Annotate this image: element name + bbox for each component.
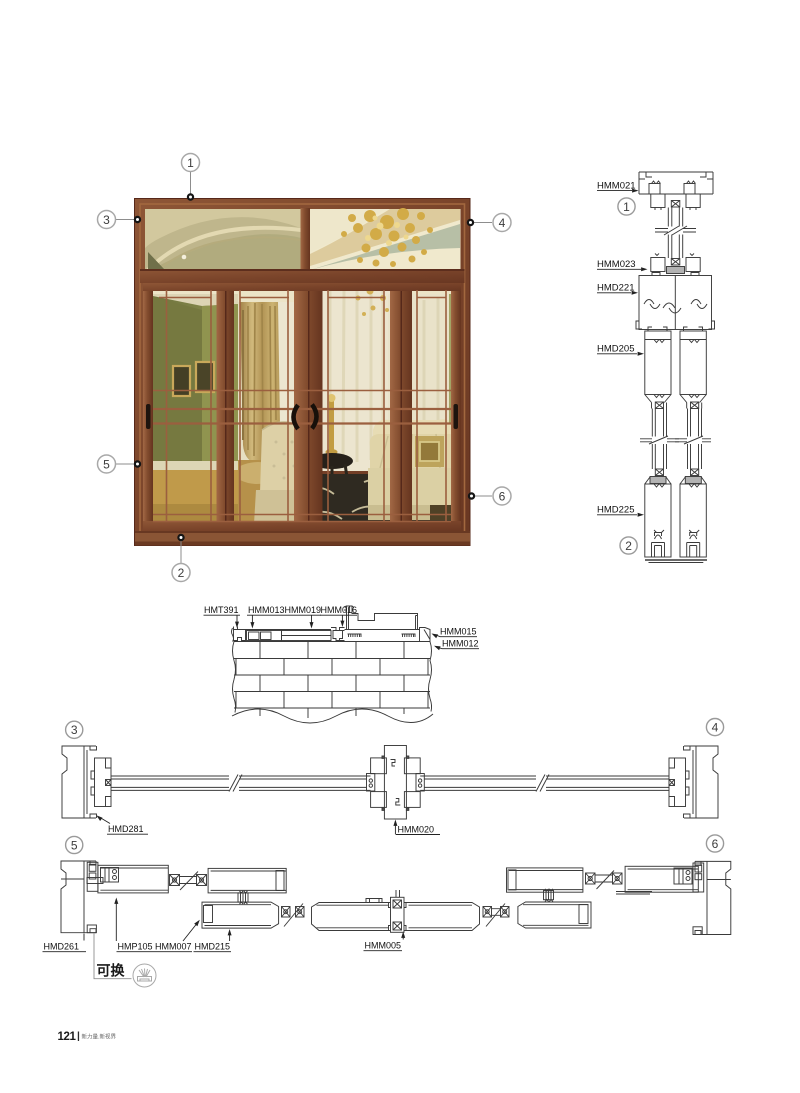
svg-text:HMM005: HMM005 [365, 941, 402, 951]
svg-text:1: 1 [187, 156, 194, 170]
svg-text:HMM013: HMM013 [248, 605, 285, 615]
svg-text:HMD221: HMD221 [597, 283, 635, 294]
svg-text:5: 5 [103, 458, 110, 472]
svg-text:3: 3 [71, 723, 78, 737]
svg-text:HMD215: HMD215 [195, 942, 231, 952]
svg-text:HMD225: HMD225 [597, 505, 635, 516]
svg-text:HMM023: HMM023 [597, 259, 636, 270]
svg-text:HMM016: HMM016 [321, 605, 358, 615]
svg-text:HMM021: HMM021 [597, 181, 636, 192]
svg-text:新力量.新视界: 新力量.新视界 [82, 1033, 117, 1041]
svg-text:4: 4 [499, 216, 506, 230]
svg-text:121: 121 [58, 1031, 77, 1043]
svg-text:HMM020: HMM020 [398, 825, 435, 835]
svg-text:HMD281: HMD281 [108, 824, 144, 834]
svg-text:2: 2 [625, 539, 632, 553]
svg-text:1: 1 [623, 200, 630, 214]
svg-text:HMP105: HMP105 [118, 942, 153, 952]
svg-text:5: 5 [71, 838, 78, 852]
svg-text:4: 4 [712, 721, 719, 735]
svg-text:HMD261: HMD261 [44, 942, 80, 952]
svg-text:HMT391: HMT391 [204, 605, 239, 615]
svg-text:2: 2 [178, 566, 185, 580]
svg-text:6: 6 [499, 490, 506, 504]
svg-text:可换: 可换 [97, 963, 126, 979]
svg-text:HMM012: HMM012 [442, 639, 479, 649]
svg-text:HMD205: HMD205 [597, 344, 635, 355]
svg-text:HMM019: HMM019 [285, 605, 322, 615]
svg-text:HMM007: HMM007 [155, 942, 192, 952]
svg-text:HMM015: HMM015 [440, 627, 477, 637]
svg-text:6: 6 [712, 837, 719, 851]
svg-text:3: 3 [103, 213, 110, 227]
